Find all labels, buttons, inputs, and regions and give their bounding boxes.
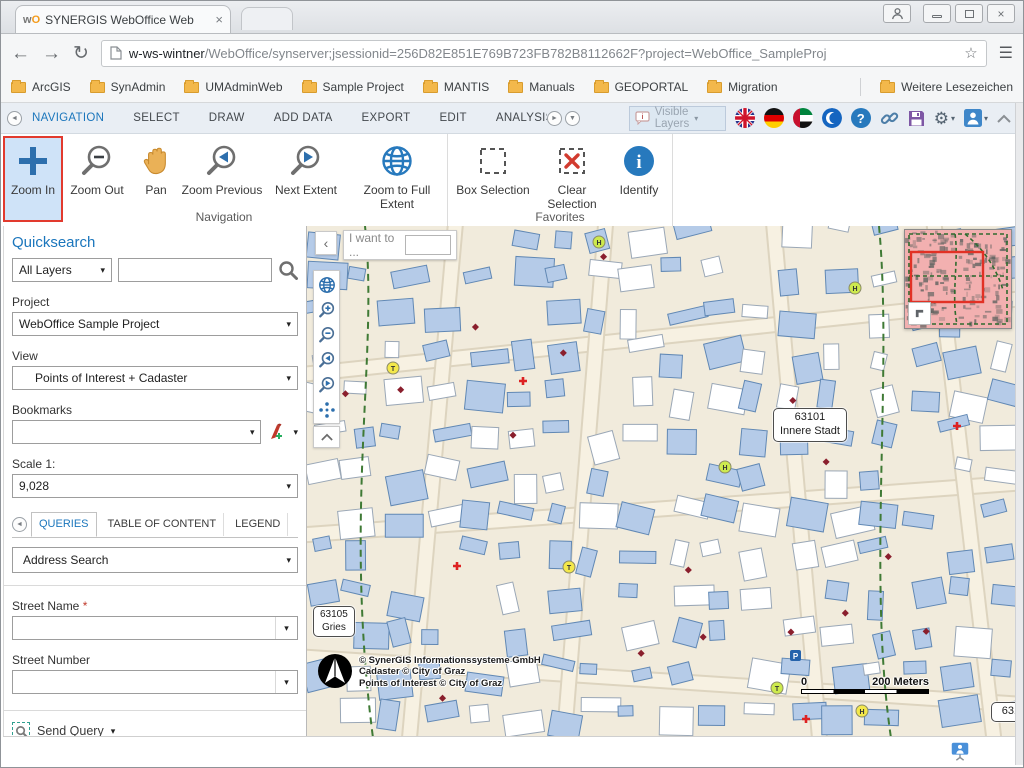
street-number-combo[interactable]: ▾ bbox=[12, 670, 298, 694]
new-tab-button[interactable] bbox=[241, 7, 293, 30]
scale-label: Scale 1: bbox=[12, 457, 298, 471]
ribbon-tab-select[interactable]: SELECT bbox=[131, 108, 182, 128]
flag-germany-icon[interactable] bbox=[764, 108, 784, 128]
caret-down-icon: ▾ bbox=[694, 114, 719, 123]
svg-text:H: H bbox=[596, 240, 601, 247]
info-bubble-icon: i bbox=[635, 111, 650, 125]
link-icon[interactable] bbox=[880, 109, 899, 128]
svg-text:i: i bbox=[636, 152, 641, 173]
map-zoom-previous-icon[interactable] bbox=[315, 348, 338, 371]
flag-crescent-icon[interactable] bbox=[822, 108, 842, 128]
dashed-box-icon bbox=[478, 141, 508, 181]
flag-uae-icon[interactable] bbox=[793, 108, 813, 128]
caret-down-icon: ▾ bbox=[286, 319, 291, 330]
ribbon-tab-navigation[interactable]: NAVIGATION bbox=[30, 108, 106, 128]
flag-uk-icon[interactable] bbox=[735, 108, 755, 128]
browser-window: wO SYNERGIS WebOffice Web × × ← → ↻ w-ws… bbox=[0, 0, 1024, 768]
bookmarks-label: Bookmarks bbox=[12, 403, 298, 417]
bookmarks-select[interactable]: ▾ bbox=[12, 420, 261, 444]
ribbon-tab-export[interactable]: EXPORT bbox=[360, 108, 413, 128]
folder-icon bbox=[707, 82, 722, 93]
magnifier-minus-icon bbox=[79, 141, 115, 181]
folder-icon bbox=[11, 82, 26, 93]
user-menu[interactable]: ▾ bbox=[964, 109, 988, 127]
caret-down-icon: ▾ bbox=[286, 555, 291, 566]
view-select[interactable]: Points of Interest + Cadaster▾ bbox=[12, 366, 298, 390]
district-label-clipped: 6310 bbox=[991, 702, 1015, 722]
browser-navbar: ← → ↻ w-ws-wintner/WebOffice/synserver;j… bbox=[1, 34, 1023, 72]
globe-icon bbox=[379, 141, 415, 181]
svg-text:T: T bbox=[391, 366, 396, 373]
folder-icon bbox=[302, 82, 317, 93]
add-bookmark-icon[interactable] bbox=[267, 423, 287, 441]
magnifier-back-icon bbox=[204, 141, 240, 181]
caret-down-icon: ▾ bbox=[100, 265, 105, 276]
browser-menu-icon[interactable]: ☰ bbox=[999, 43, 1013, 63]
svg-text:H: H bbox=[852, 286, 857, 293]
next-extent-button[interactable]: Next Extent bbox=[263, 136, 349, 197]
bookmark-item[interactable]: Manuals bbox=[508, 80, 574, 94]
street-name-combo[interactable]: ▾ bbox=[12, 616, 298, 640]
bookmark-item[interactable]: SynAdmin bbox=[90, 80, 166, 94]
caret-down-icon: ▾ bbox=[951, 114, 955, 123]
project-label: Project bbox=[12, 295, 298, 309]
i-want-to-input[interactable] bbox=[405, 235, 451, 255]
map-zoom-in-icon[interactable] bbox=[315, 298, 338, 321]
identify-icon: i bbox=[622, 141, 656, 181]
svg-text:H: H bbox=[722, 465, 727, 472]
group-label-navigation: Navigation bbox=[1, 210, 447, 224]
ribbon-more-icon[interactable]: ▼ bbox=[565, 111, 580, 126]
street-name-label: Street Name * bbox=[12, 599, 298, 613]
map-copyright: © SynerGIS Informationssysteme GmbH Cada… bbox=[359, 655, 541, 690]
presentation-user-icon[interactable] bbox=[949, 740, 971, 762]
close-button[interactable]: × bbox=[987, 4, 1015, 23]
layers-select[interactable]: All Layers▾ bbox=[12, 258, 112, 282]
sidebar: Quicksearch All Layers▾ Project WebOffic… bbox=[3, 226, 307, 736]
magnifier-forward-icon bbox=[288, 141, 324, 181]
scale-select[interactable]: 9,028▾ bbox=[12, 474, 298, 498]
svg-text:T: T bbox=[567, 565, 572, 572]
svg-text:H: H bbox=[859, 709, 864, 716]
clear-selection-button[interactable]: Clear Selection bbox=[536, 136, 608, 212]
district-label-innere-stadt: 63101Innere Stadt bbox=[773, 408, 847, 442]
toolbar-group-navigation: Zoom In Zoom Out Pan Zoom Previous Next … bbox=[1, 134, 448, 226]
gear-icon: ⚙ bbox=[934, 110, 949, 127]
tabs-scroll-left-icon[interactable]: ◄ bbox=[12, 517, 27, 532]
map-tools-collapse-icon[interactable] bbox=[313, 426, 340, 448]
bookmark-item[interactable]: Sample Project bbox=[302, 80, 404, 94]
bookmark-item[interactable]: MANTIS bbox=[423, 80, 489, 94]
map-tools bbox=[313, 270, 340, 424]
caret-down-icon[interactable]: ▾ bbox=[275, 617, 297, 639]
map-locate-icon[interactable] bbox=[315, 398, 338, 421]
address-bar[interactable]: w-ws-wintner/WebOffice/synserver;jsessio… bbox=[101, 40, 987, 67]
profile-icon[interactable] bbox=[883, 4, 911, 23]
group-label-favorites: Favorites bbox=[448, 210, 672, 224]
overview-toggle-icon[interactable] bbox=[908, 302, 931, 325]
ribbon-tab-bar: ◄ NAVIGATION SELECT DRAW ADD DATA EXPORT… bbox=[1, 103, 1023, 134]
sidebar-tab-bar: ◄ QUERIES TABLE OF CONTENT LEGEND L ► ▼ bbox=[12, 511, 298, 538]
collapse-sidebar-icon[interactable]: ‹ bbox=[315, 231, 337, 255]
quicksearch-title: Quicksearch bbox=[12, 234, 298, 251]
ribbon-scroll-right-icon[interactable]: ► bbox=[547, 111, 562, 126]
status-bar bbox=[3, 736, 1015, 765]
folder-icon bbox=[508, 82, 523, 93]
north-arrow bbox=[317, 653, 353, 694]
more-bookmarks[interactable]: Weitere Lesezeichen bbox=[880, 80, 1013, 94]
svg-text:P: P bbox=[793, 652, 799, 661]
caret-down-icon: ▾ bbox=[250, 427, 255, 438]
tab-legend[interactable]: LEGEND bbox=[228, 513, 288, 536]
url-text: w-ws-wintner/WebOffice/synserver;jsessio… bbox=[129, 46, 960, 61]
weboffice-favicon: wO bbox=[23, 14, 40, 26]
map-zoom-next-icon[interactable] bbox=[315, 373, 338, 396]
back-icon[interactable]: ← bbox=[11, 44, 30, 63]
folder-icon bbox=[423, 82, 438, 93]
caret-down-icon[interactable]: ▾ bbox=[293, 427, 298, 438]
zoom-out-button[interactable]: Zoom Out bbox=[63, 136, 131, 197]
forward-icon[interactable]: → bbox=[42, 44, 61, 63]
tab-table-of-content[interactable]: TABLE OF CONTENT bbox=[101, 513, 225, 536]
hand-icon bbox=[139, 141, 173, 181]
box-selection-button[interactable]: Box Selection bbox=[450, 136, 536, 197]
zoom-full-extent-button[interactable]: Zoom to Full Extent bbox=[349, 136, 445, 212]
bookmark-item[interactable]: GEOPORTAL bbox=[594, 80, 689, 94]
scale-bar: 0200 Meters bbox=[801, 676, 929, 694]
svg-text:i: i bbox=[641, 114, 643, 121]
collapse-ribbon-icon[interactable] bbox=[997, 114, 1011, 123]
overview-map[interactable] bbox=[904, 229, 1012, 329]
folder-icon bbox=[880, 82, 895, 93]
district-label-gries: 63105Gries bbox=[313, 606, 355, 637]
page-icon bbox=[110, 46, 122, 60]
bookmark-star-icon[interactable]: ☆ bbox=[964, 44, 977, 62]
folder-icon bbox=[90, 82, 105, 93]
bookmarks-bar: ArcGIS SynAdmin UMAdminWeb Sample Projec… bbox=[1, 72, 1023, 103]
ribbon-tab-add-data[interactable]: ADD DATA bbox=[272, 108, 335, 128]
caret-down-icon[interactable]: ▾ bbox=[275, 671, 297, 693]
pan-button[interactable]: Pan bbox=[131, 136, 181, 197]
ribbon-toolbar: Zoom In Zoom Out Pan Zoom Previous Next … bbox=[1, 134, 1023, 226]
ribbon-tab-draw[interactable]: DRAW bbox=[207, 108, 247, 128]
i-want-to-widget[interactable]: I want to ... bbox=[343, 230, 457, 260]
view-label: View bbox=[12, 349, 298, 363]
reload-icon[interactable]: ↻ bbox=[73, 44, 89, 63]
tab-queries[interactable]: QUERIES bbox=[31, 512, 97, 537]
search-icon[interactable] bbox=[278, 260, 298, 280]
identify-button[interactable]: i Identify bbox=[608, 136, 670, 197]
caret-down-icon: ▾ bbox=[286, 373, 291, 384]
visible-layers-dropdown[interactable]: i Visible Layers ▾ bbox=[629, 106, 726, 131]
dashed-box-x-icon bbox=[557, 141, 587, 181]
bookmark-item[interactable]: ArcGIS bbox=[11, 80, 71, 94]
maximize-button[interactable] bbox=[955, 4, 983, 23]
minimize-button[interactable] bbox=[923, 4, 951, 23]
svg-text:T: T bbox=[775, 686, 780, 693]
bookmark-item[interactable]: Migration bbox=[707, 80, 777, 94]
tab-title: SYNERGIS WebOffice Web bbox=[45, 13, 210, 27]
project-select[interactable]: WebOffice Sample Project▾ bbox=[12, 312, 298, 336]
folder-icon bbox=[184, 82, 199, 93]
browser-titlebar: wO SYNERGIS WebOffice Web × × bbox=[1, 1, 1023, 34]
quicksearch-input[interactable] bbox=[118, 258, 272, 282]
zoom-previous-button[interactable]: Zoom Previous bbox=[181, 136, 263, 197]
ribbon-scroll-left-icon[interactable]: ◄ bbox=[7, 111, 22, 126]
bookmark-item[interactable]: UMAdminWeb bbox=[184, 80, 282, 94]
browser-tab[interactable]: wO SYNERGIS WebOffice Web × bbox=[15, 5, 231, 33]
caret-down-icon: ▾ bbox=[286, 481, 291, 492]
caret-down-icon: ▾ bbox=[111, 726, 116, 737]
map-zoom-out-icon[interactable] bbox=[315, 323, 338, 346]
ribbon-tab-analysis[interactable]: ANALYSIS bbox=[494, 108, 547, 128]
settings-menu[interactable]: ⚙▾ bbox=[934, 110, 955, 127]
caret-down-icon: ▾ bbox=[984, 114, 988, 123]
query-type-select[interactable]: Address Search▾ bbox=[12, 547, 298, 573]
help-icon[interactable]: ? bbox=[851, 108, 871, 128]
ribbon-tab-edit[interactable]: EDIT bbox=[437, 108, 468, 128]
plus-icon bbox=[16, 141, 50, 181]
map-canvas[interactable]: HTHTHHTP ‹ I want to ... 63101Innere bbox=[307, 226, 1015, 736]
tab-close-icon[interactable]: × bbox=[215, 12, 223, 27]
folder-icon bbox=[594, 82, 609, 93]
tab-clipped[interactable]: L bbox=[292, 513, 298, 536]
save-icon[interactable] bbox=[908, 110, 925, 127]
user-icon bbox=[964, 109, 982, 127]
street-number-label: Street Number bbox=[12, 653, 298, 667]
toolbar-group-favorites: Box Selection Clear Selection i Identify… bbox=[448, 134, 673, 226]
map-globe-icon[interactable] bbox=[315, 273, 338, 296]
